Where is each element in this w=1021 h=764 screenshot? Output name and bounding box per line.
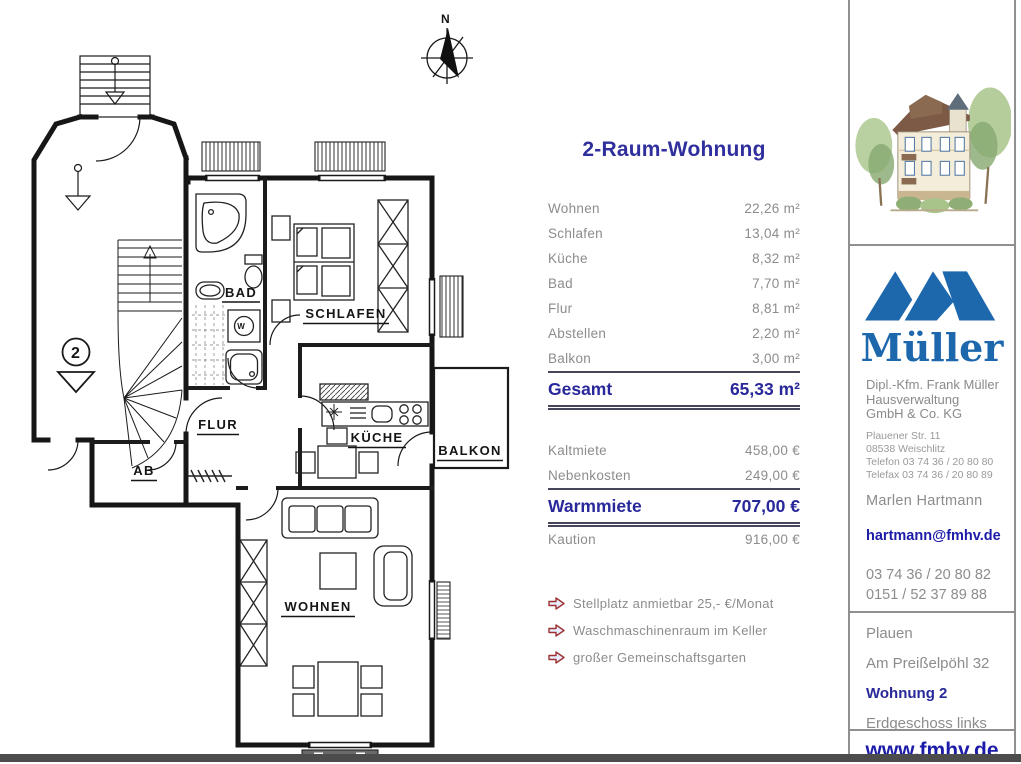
interior-stairs (118, 240, 182, 468)
total-area-label: Gesamt (548, 379, 612, 400)
cost-value: 249,00 € (745, 468, 800, 483)
room-label-wohnen: WOHNEN (284, 599, 351, 614)
company-details: Plauener Str. 11 08538 Weischlitz Telefo… (850, 430, 1014, 482)
cost-table: Kaltmiete 458,00 € Nebenkosten 249,00 € … (548, 438, 800, 552)
coat-rack (188, 470, 232, 482)
table-row: Bad 7,70 m² (548, 271, 800, 296)
area-label: Abstellen (548, 326, 606, 341)
arrow-right-icon (548, 651, 565, 664)
deposit-label: Kaution (548, 532, 596, 547)
room-label-balkon: BALKON (438, 443, 501, 458)
room-label-flur: FLUR (198, 417, 238, 432)
mueller-logo-icon (857, 262, 1007, 328)
warm-rent-value: 707,00 € (732, 496, 800, 517)
stair-direction-marker (66, 165, 90, 211)
washer-label: W (237, 322, 245, 331)
cost-label: Nebenkosten (548, 468, 631, 483)
address-section: Plauen Am Preißelpöhl 32 Wohnung 2 Erdge… (850, 613, 1014, 731)
area-label: Bad (548, 276, 573, 291)
mueller-logo-text: Müller (850, 328, 1014, 368)
feature-text: Waschmaschinenraum im Keller (573, 623, 767, 638)
exterior-stairs (80, 56, 150, 117)
table-row: Abstellen 2,20 m² (548, 321, 800, 346)
floor-plan: N (0, 0, 545, 764)
area-label: Balkon (548, 351, 591, 366)
warm-rent-label: Warmmiete (548, 496, 642, 517)
company-line: Dipl.-Kfm. Frank Müller (866, 378, 1014, 393)
company-detail-line: Telefax 03 74 36 / 20 80 89 (866, 469, 1014, 482)
sidebar: Müller Dipl.-Kfm. Frank Müller Hausverwa… (848, 0, 1016, 754)
company-line: GmbH & Co. KG (866, 407, 1014, 422)
contact-email-link[interactable]: hartmann@fmhv.de (850, 528, 1014, 544)
cost-label: Kaltmiete (548, 443, 607, 458)
bottom-bar (0, 754, 1021, 762)
feature-text: Stellplatz anmietbar 25,- €/Monat (573, 596, 774, 611)
company-line: Hausverwaltung (866, 393, 1014, 408)
company-detail-line: Plauener Str. 11 (866, 430, 1014, 443)
area-value: 13,04 m² (744, 226, 800, 241)
table-row: Flur 8,81 m² (548, 296, 800, 321)
area-label: Küche (548, 251, 588, 266)
area-value: 8,32 m² (752, 251, 800, 266)
contact-name: Marlen Hartmann (850, 493, 1014, 509)
address-unit: Wohnung 2 (866, 679, 1014, 709)
room-label-ab: AB (133, 463, 154, 478)
house-illustration-section (850, 0, 1014, 246)
table-row: Kaltmiete 458,00 € (548, 438, 800, 463)
total-area-row: Gesamt 65,33 m² (548, 371, 800, 410)
deposit-row: Kaution 916,00 € (548, 527, 800, 552)
floor-number-label: 2 (71, 345, 80, 362)
arrow-right-icon (548, 597, 565, 610)
table-row: Schlafen 13,04 m² (548, 221, 800, 246)
company-info: Dipl.-Kfm. Frank Müller Hausverwaltung G… (850, 378, 1014, 422)
deposit-value: 916,00 € (745, 532, 800, 547)
room-label-bad: BAD (225, 285, 257, 300)
area-value: 7,70 m² (752, 276, 800, 291)
compass-icon (421, 28, 473, 84)
cost-value: 458,00 € (745, 443, 800, 458)
area-value: 2,20 m² (752, 326, 800, 341)
feature-text: großer Gemeinschaftsgarten (573, 650, 746, 665)
contact-phones: 03 74 36 / 20 80 82 0151 / 52 37 89 88 (850, 565, 1014, 605)
address-city: Plauen (866, 619, 1014, 649)
arrow-right-icon (548, 624, 565, 637)
house-illustration (853, 58, 1011, 238)
total-area-value: 65,33 m² (730, 379, 800, 400)
compass-n-label: N (441, 12, 450, 26)
area-label: Flur (548, 301, 572, 316)
table-row: Balkon 3,00 m² (548, 346, 800, 371)
company-section: Müller Dipl.-Kfm. Frank Müller Hausverwa… (850, 262, 1014, 613)
room-label-kueche: KÜCHE (351, 430, 404, 445)
table-row: Küche 8,32 m² (548, 246, 800, 271)
bathroom-tiles (192, 305, 226, 385)
list-item: Stellplatz anmietbar 25,- €/Monat (548, 590, 800, 617)
apartment-info: 2-Raum-Wohnung Wohnen 22,26 m² Schlafen … (548, 138, 800, 671)
company-detail-line: Telefon 03 74 36 / 20 80 80 (866, 456, 1014, 469)
warm-rent-row: Warmmiete 707,00 € (548, 488, 800, 527)
list-item: Waschmaschinenraum im Keller (548, 617, 800, 644)
table-row: Nebenkosten 249,00 € (548, 463, 800, 488)
area-value: 3,00 m² (752, 351, 800, 366)
area-table: Wohnen 22,26 m² Schlafen 13,04 m² Küche … (548, 196, 800, 410)
address-street: Am Preißelpöhl 32 (866, 649, 1014, 679)
list-item: großer Gemeinschaftsgarten (548, 644, 800, 671)
area-label: Wohnen (548, 201, 600, 216)
feature-list: Stellplatz anmietbar 25,- €/Monat Waschm… (548, 590, 800, 671)
contact-phone: 03 74 36 / 20 80 82 (866, 565, 1014, 585)
contact-phone: 0151 / 52 37 89 88 (866, 585, 1014, 605)
area-value: 22,26 m² (744, 201, 800, 216)
room-label-schlafen: SCHLAFEN (305, 306, 386, 321)
window-sills (202, 142, 463, 760)
flyer-page: N (0, 0, 1021, 764)
page-title: 2-Raum-Wohnung (548, 138, 800, 162)
area-value: 8,81 m² (752, 301, 800, 316)
table-row: Wohnen 22,26 m² (548, 196, 800, 221)
area-label: Schlafen (548, 226, 603, 241)
company-detail-line: 08538 Weischlitz (866, 443, 1014, 456)
